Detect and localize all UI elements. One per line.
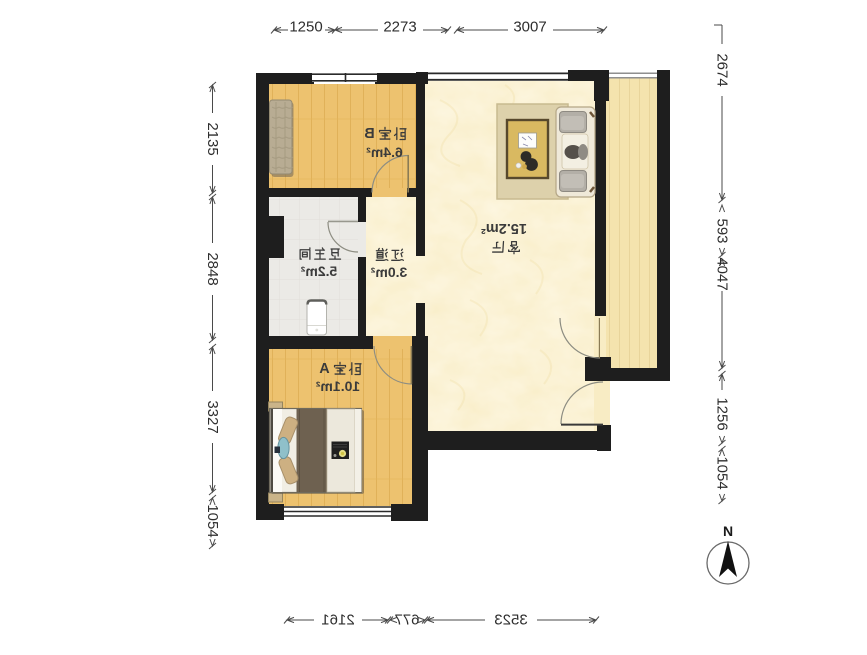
svg-text:A: A xyxy=(319,361,329,377)
svg-text:2273: 2273 xyxy=(383,19,416,36)
svg-text:2848: 2848 xyxy=(204,252,221,285)
svg-text:4047: 4047 xyxy=(714,257,731,290)
svg-text:677: 677 xyxy=(394,612,419,629)
svg-text:B: B xyxy=(364,126,374,142)
svg-text:2674: 2674 xyxy=(714,53,731,86)
svg-text:593: 593 xyxy=(714,218,731,243)
svg-text:3327: 3327 xyxy=(204,400,221,433)
svg-text:2135: 2135 xyxy=(204,122,221,155)
svg-text:10.1m²: 10.1m² xyxy=(315,378,360,394)
svg-text:1054: 1054 xyxy=(204,504,221,537)
svg-text:6.4m²: 6.4m² xyxy=(366,144,403,160)
svg-text:15.2m²: 15.2m² xyxy=(481,220,527,236)
svg-text:1250: 1250 xyxy=(289,19,322,36)
svg-text:5.2m²: 5.2m² xyxy=(300,263,337,279)
svg-text:1054: 1054 xyxy=(714,456,731,489)
svg-text:1256: 1256 xyxy=(714,397,731,430)
svg-text:N: N xyxy=(723,523,733,539)
svg-text:3523: 3523 xyxy=(494,612,527,629)
svg-text:3007: 3007 xyxy=(513,19,546,36)
svg-text:3.0m²: 3.0m² xyxy=(370,264,407,280)
svg-text:2161: 2161 xyxy=(321,612,354,629)
